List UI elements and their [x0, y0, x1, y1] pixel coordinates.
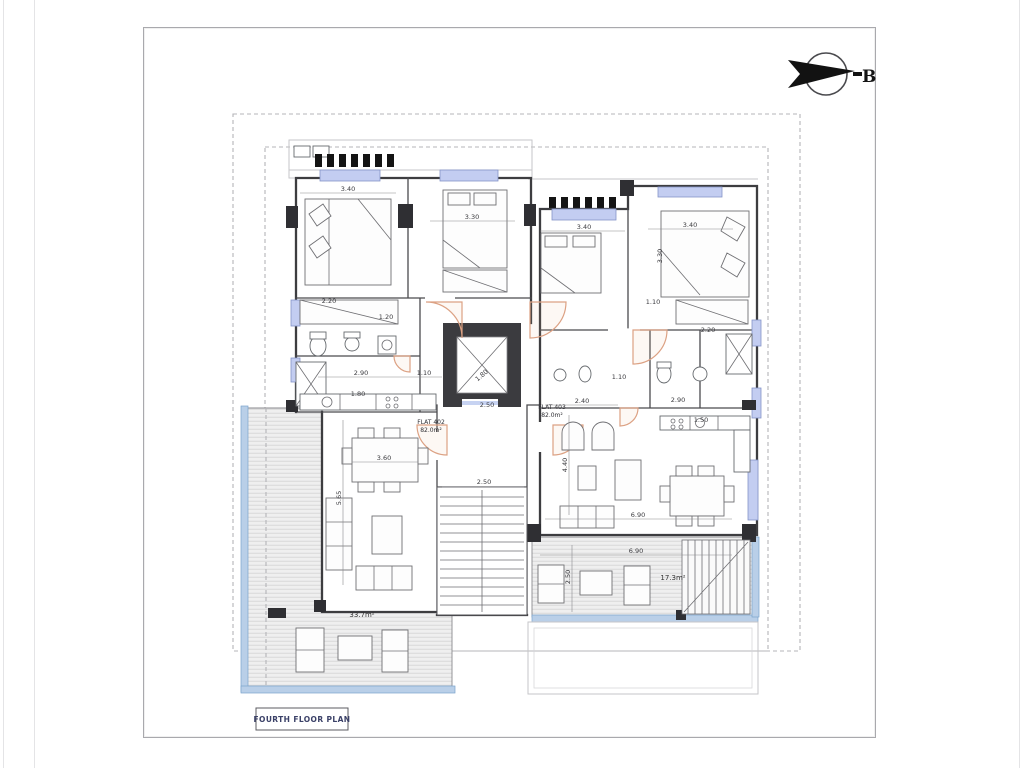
title-box: FOURTH FLOOR PLAN [254, 708, 351, 730]
dimension-label: 3.40 [577, 223, 591, 231]
dimension-label: 2.90 [354, 369, 368, 377]
elevator-shaft [443, 323, 521, 407]
pergola-right [549, 197, 616, 208]
dimension-label: 2.90 [671, 396, 685, 404]
dimension-label: 6.90 [629, 547, 643, 555]
dimension-label: 3.30 [465, 213, 479, 221]
dimension-label: 1.50 [694, 416, 708, 424]
dimension-label: 4.40 [561, 458, 569, 472]
floor-plan-drawing: 3.403.303.403.403.302.201.202.901.101.80… [0, 0, 1024, 768]
area-label: 17.3m² [660, 574, 685, 582]
dimension-label: 2.20 [701, 326, 715, 334]
terrace-staircase [682, 540, 750, 614]
flat-label: 82.0m² [420, 427, 442, 434]
dimension-label: 2.40 [575, 397, 589, 405]
flat-label: FLAT 403 [538, 404, 566, 411]
dimension-label: 2.50 [564, 570, 572, 584]
north-arrow-icon: B [788, 53, 876, 95]
dimension-label: 1.20 [379, 313, 393, 321]
dimension-label: 3.60 [377, 454, 391, 462]
north-label: B [862, 67, 876, 87]
lower-floor-outline [528, 622, 758, 694]
dimension-label: 1.80 [351, 390, 365, 398]
dimension-label: 3.30 [656, 249, 664, 263]
flat-label: FLAT 402 [417, 419, 445, 426]
dimension-label: 1.10 [417, 369, 431, 377]
area-label: 33.7m² [349, 611, 374, 619]
furniture-right-flat [541, 211, 749, 528]
dimension-label: 2.50 [480, 401, 494, 409]
screenshot-canvas: 3.403.303.403.403.302.201.202.901.101.80… [0, 0, 1024, 768]
dimension-label: 1.10 [612, 373, 626, 381]
dimension-label: 1.10 [646, 298, 660, 306]
dimension-label: 6.90 [631, 511, 645, 519]
dimension-label: 2.20 [322, 297, 336, 305]
dimension-label: 3.40 [341, 185, 355, 193]
main-staircase [437, 487, 527, 615]
flat-label: 82.0m² [541, 412, 563, 419]
dimension-label: 3.40 [683, 221, 697, 229]
dimension-label: 5.65 [335, 491, 343, 505]
dimension-label: 2.50 [477, 478, 491, 486]
plan-title: FOURTH FLOOR PLAN [254, 715, 351, 724]
